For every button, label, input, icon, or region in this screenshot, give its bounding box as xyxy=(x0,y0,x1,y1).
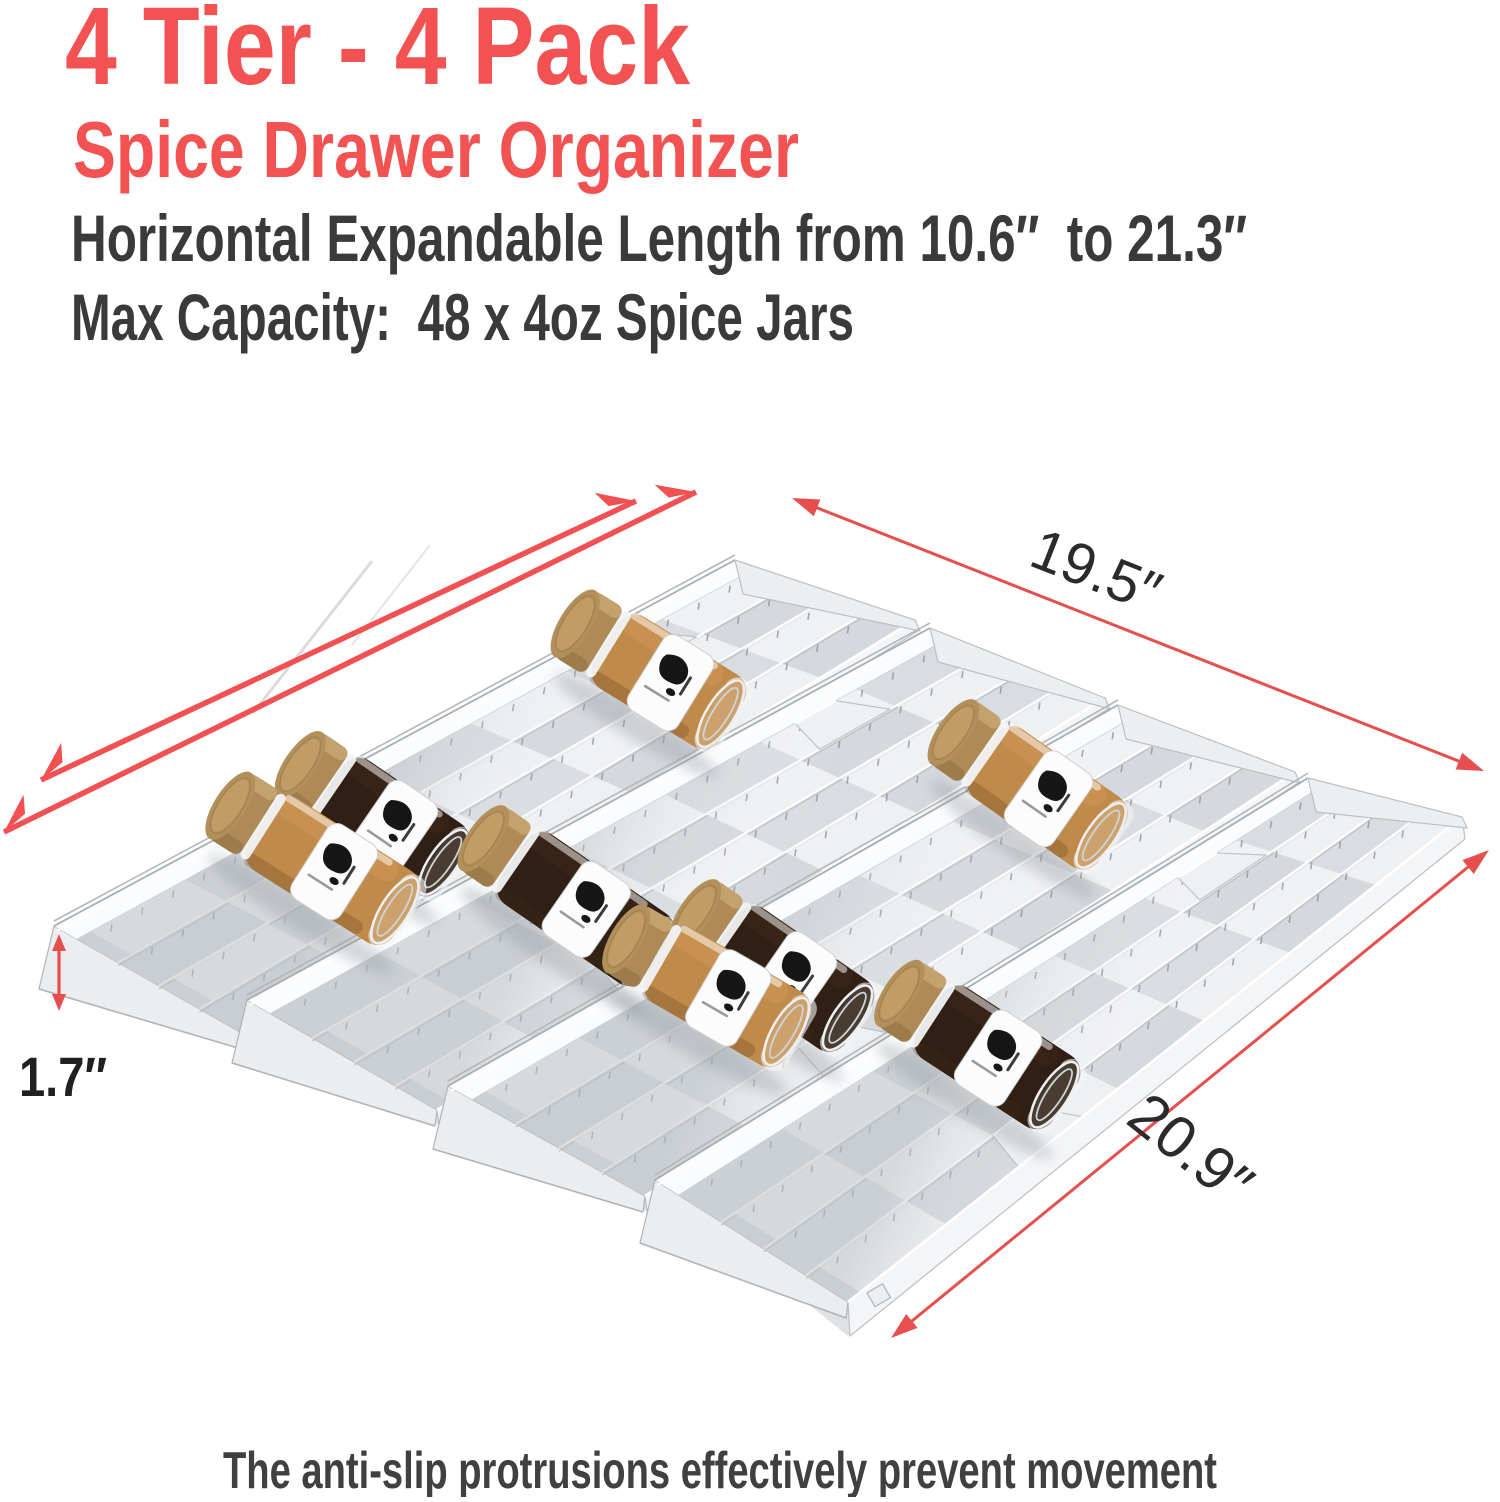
svg-text:Spice Drawer Organizer: Spice Drawer Organizer xyxy=(73,105,799,194)
svg-text:4 Tier - 4 Pack: 4 Tier - 4 Pack xyxy=(65,0,691,108)
svg-text:1.7″: 1.7″ xyxy=(19,1045,107,1108)
svg-text:Max Capacity: 48 x 4oz Spice: Max Capacity: 48 x 4oz Spice Jars xyxy=(71,280,854,354)
svg-text:Horizontal Expandable Length f: Horizontal Expandable Length from 10.6″ … xyxy=(71,201,1247,275)
svg-text:The anti-slip protrusions effe: The anti-slip protrusions effectively pr… xyxy=(223,1442,1217,1497)
